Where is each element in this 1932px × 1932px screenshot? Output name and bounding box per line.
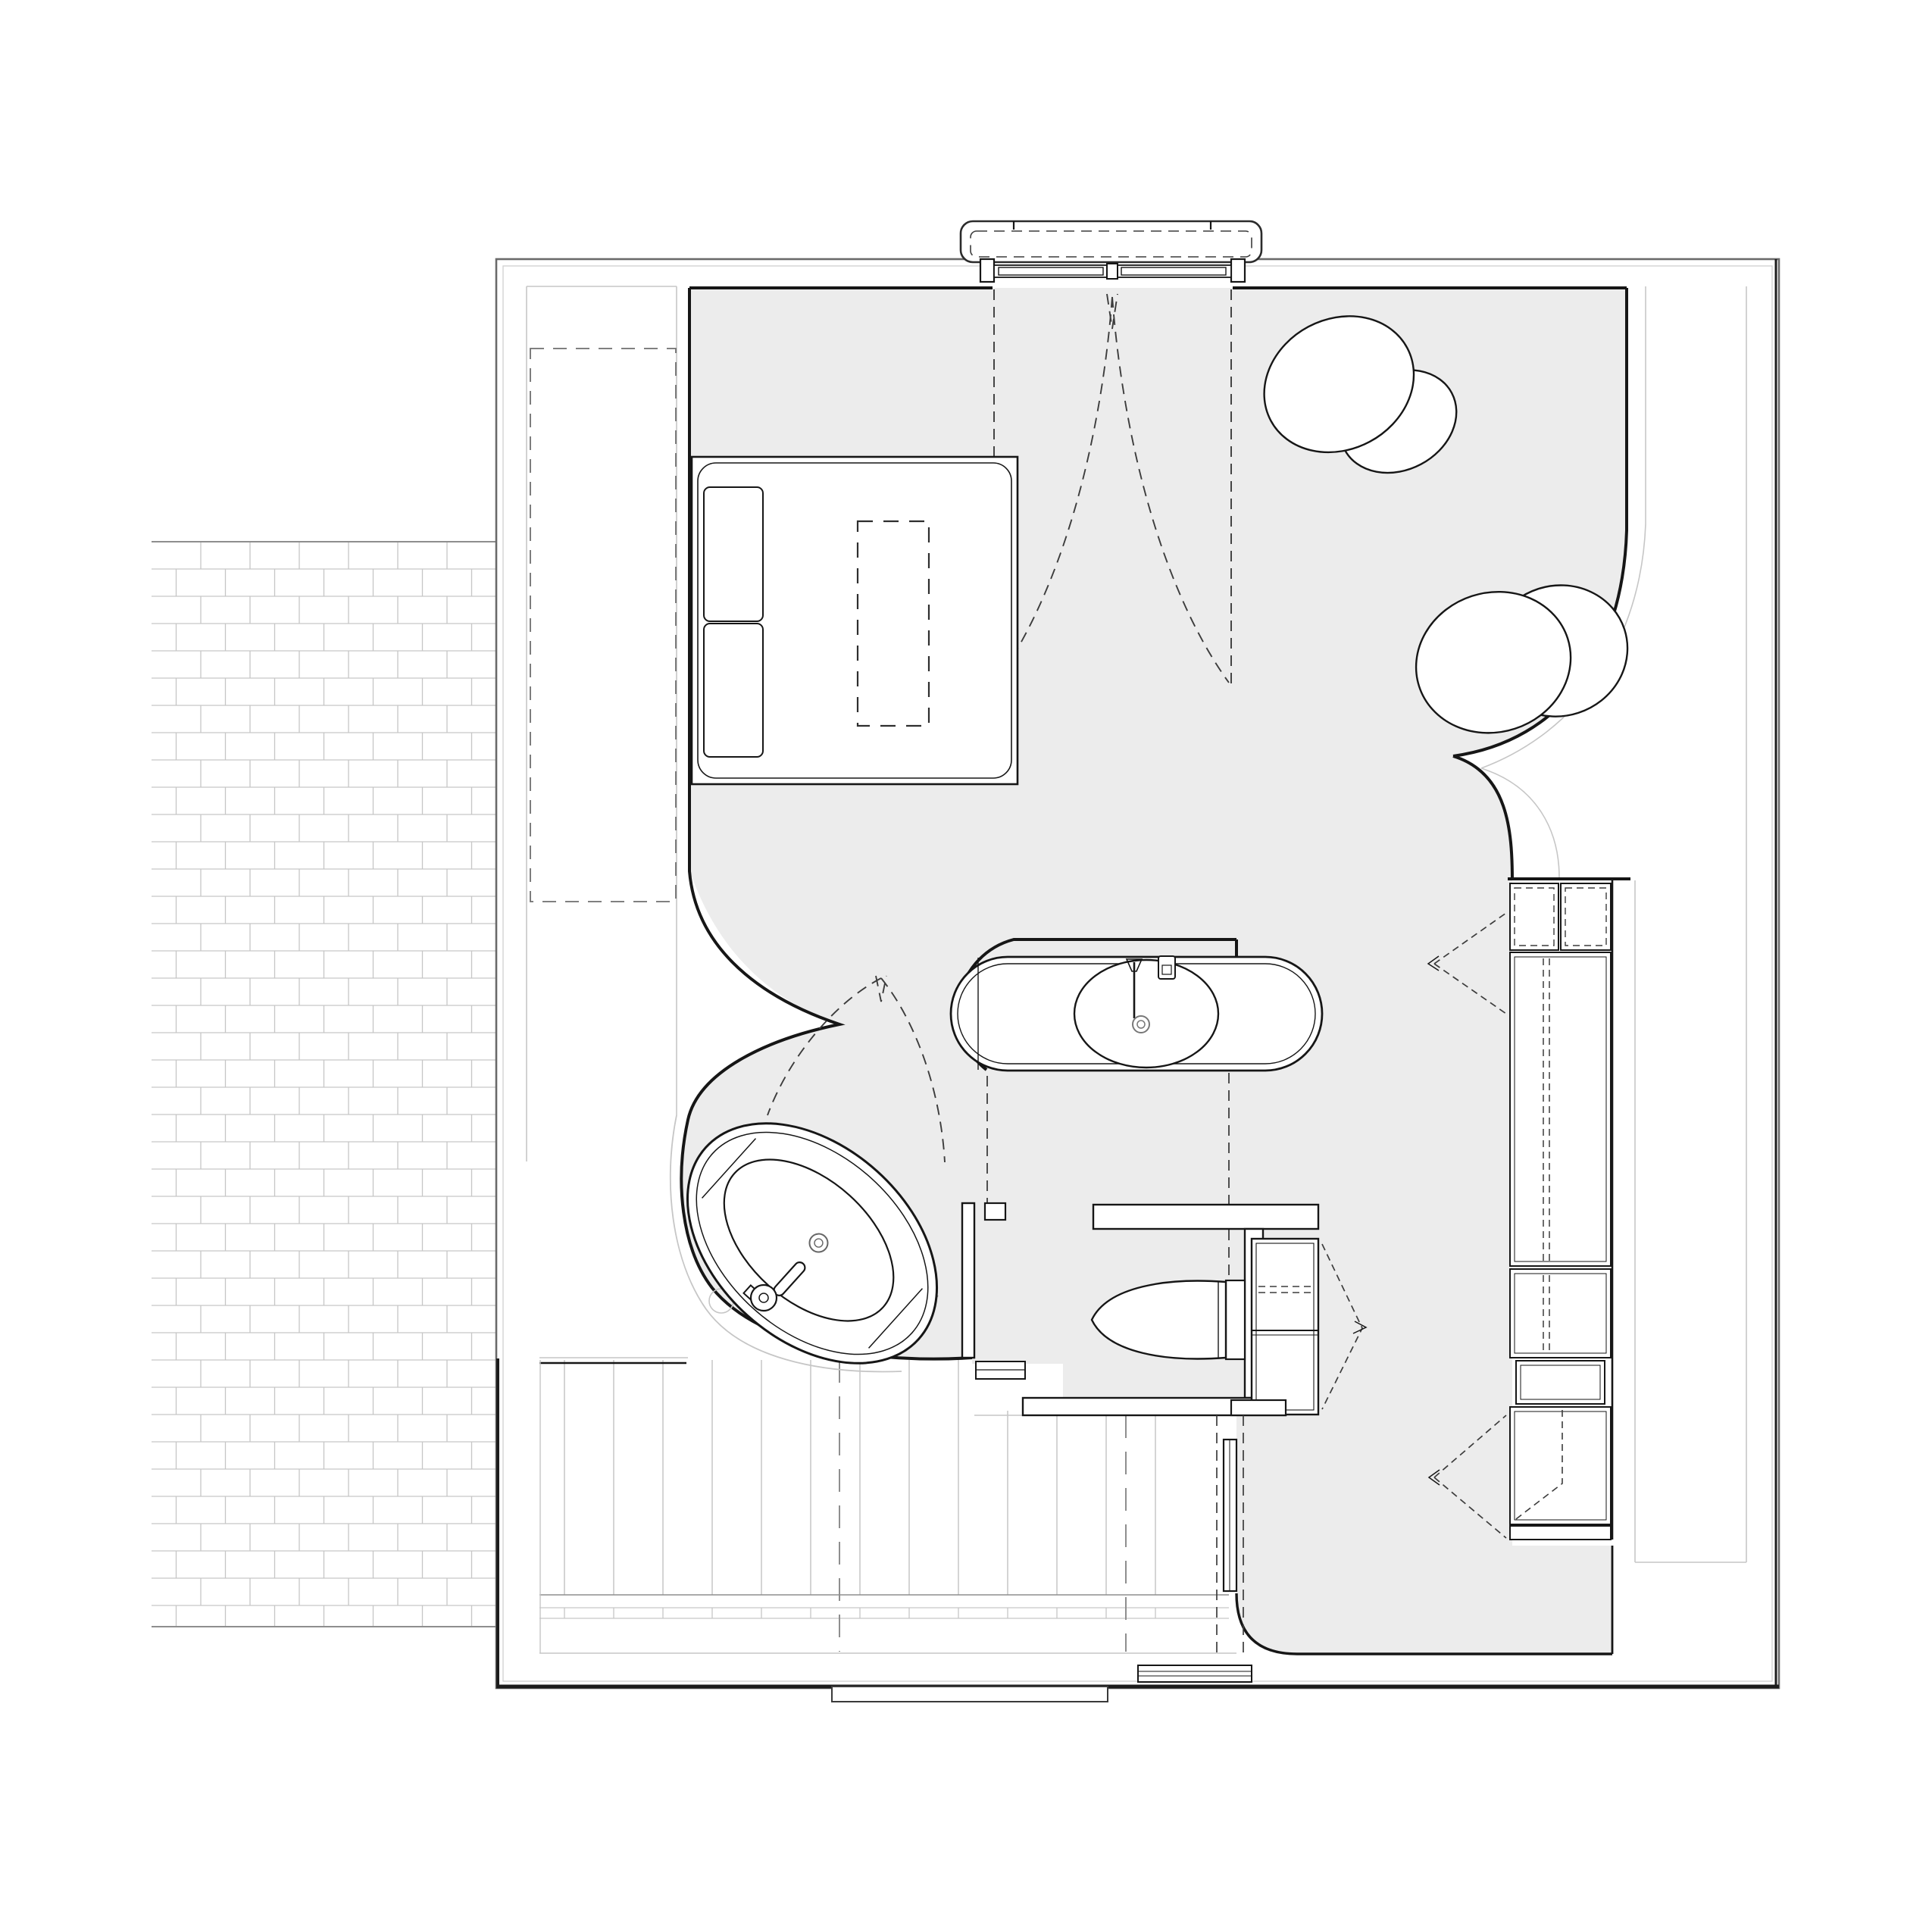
vanity-basin xyxy=(1074,960,1218,1068)
corridor-door-threshold xyxy=(1231,1400,1286,1415)
faucet-base xyxy=(751,1285,777,1311)
bed-group xyxy=(692,457,1018,784)
wardrobe-box xyxy=(1510,883,1558,950)
toilet-door-jamb xyxy=(985,1203,1005,1220)
wardrobe-box xyxy=(1561,883,1611,950)
door-leaf-right xyxy=(1121,267,1226,275)
side-cabinet xyxy=(1252,1239,1318,1415)
wardrobe-tall-section xyxy=(1510,952,1611,1266)
wall-outset-band xyxy=(832,1687,1108,1702)
faucet-handle xyxy=(1158,956,1175,979)
toilet-cistern xyxy=(1226,1280,1245,1359)
balcony-awning xyxy=(961,221,1261,262)
pillow xyxy=(704,624,763,757)
exterior-door-threshold xyxy=(1138,1665,1252,1682)
door-leaf-left xyxy=(999,267,1103,275)
pillow xyxy=(704,487,763,621)
door-jamb-right xyxy=(1231,259,1245,282)
basin-drain xyxy=(1133,1016,1149,1033)
wardrobe-drawer xyxy=(1516,1361,1605,1404)
brick-patio xyxy=(152,542,496,1627)
wardrobe-plinth xyxy=(1510,1526,1611,1540)
wardrobe-section xyxy=(1510,1407,1611,1524)
floor-plan-drawing xyxy=(0,0,1932,1932)
floor-plan-canvas xyxy=(0,0,1932,1932)
door-jamb-left xyxy=(980,259,994,282)
door-mullion xyxy=(1107,264,1118,279)
wardrobe-section xyxy=(1510,1269,1611,1358)
toilet-wall-top xyxy=(1093,1205,1318,1229)
